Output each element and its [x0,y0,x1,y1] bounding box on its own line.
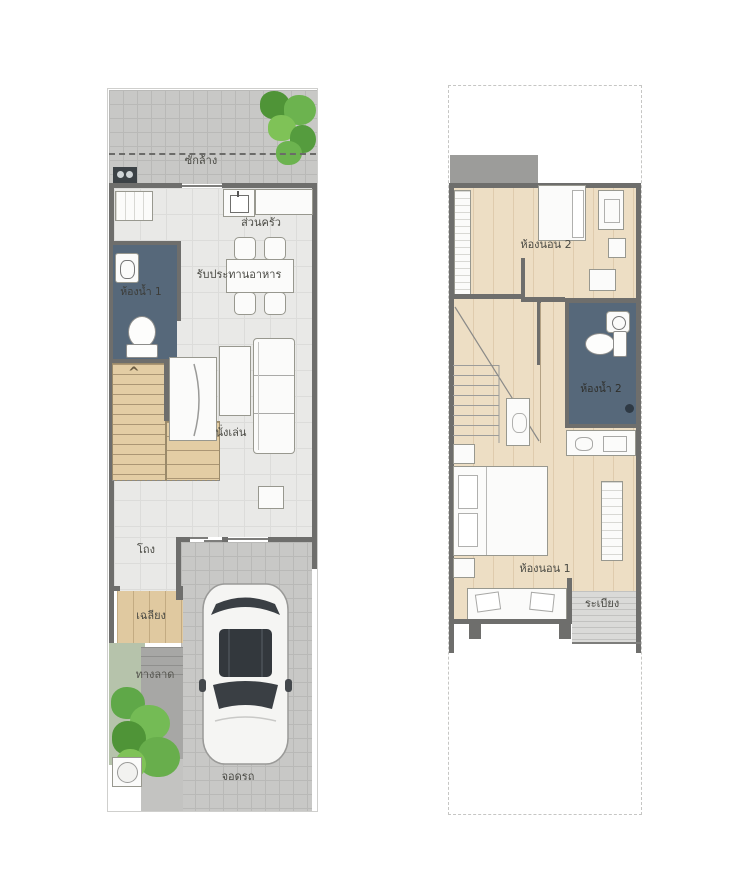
shower-head-icon [625,404,634,413]
wardrobe [454,190,471,298]
cabinet [589,269,616,291]
toilet-icon [585,331,629,357]
desk [598,190,624,230]
balcony-label: ระเบียง [567,598,637,610]
bench-sofa [467,588,567,620]
washing-machine-icon [113,167,137,183]
bedroom1-label: ห้องนอน 1 [505,563,585,575]
vanity-counter [566,430,636,456]
wall [454,294,524,299]
car-icon [199,581,292,767]
bathroom2-label: ห้องน้ำ 2 [560,384,642,396]
wall [176,586,183,600]
wall [312,183,317,563]
wall-post [469,624,481,639]
garage-sliding-door [190,537,208,539]
bedroom2-label: ห้องนอน 2 [506,239,586,251]
planter-box [112,757,142,787]
wall [177,245,181,321]
dining-chair [234,292,256,315]
garage-window [228,538,268,540]
dining-chair [264,292,286,315]
wall [449,619,571,624]
second-floor-plan: ห้องนอน 2 ห้องน้ำ 2 [448,85,642,815]
nightstand [453,558,475,578]
first-floor-plan: ซักล้าง ส่วนครัว รับประ [107,88,318,812]
dining-chair [264,237,286,260]
wall [565,424,641,428]
parking-label: จอดรถ [207,771,269,783]
wall [178,183,182,188]
sliding-door [178,185,226,187]
canopy-roof [450,155,538,184]
laundry-label: ซักล้าง [151,155,251,167]
toilet-icon [123,316,159,360]
bed-1 [453,466,548,556]
wall [109,183,178,188]
bathroom1-label: ห้องน้ำ 1 [110,287,172,299]
dining-chair [234,237,256,260]
kitchen-sink-icon [223,189,255,217]
wall-post [559,624,571,639]
floor-plan-page: ซักล้าง ส่วนครัว รับประ [0,0,750,887]
porch-label: เฉลียง [121,610,181,622]
cabinet [608,238,626,258]
hall-label: โถง [116,544,176,556]
bathroom2-sink-icon [606,311,630,333]
kitchen-label: ส่วนครัว [221,217,301,229]
wardrobe [601,481,623,561]
shoe-cabinet [115,191,153,221]
dining-label: รับประทานอาหาร [179,269,299,281]
wall [525,297,565,302]
living-label: นั่งเล่น [201,427,261,439]
stair-dashed-edge [112,480,220,481]
bed-2 [538,185,586,241]
wall [111,586,120,591]
stair-direction-arrow: ^ [128,365,140,381]
ramp-label: ทางลาด [124,669,186,681]
balcony-edge [572,642,641,644]
desk-under-stairs [506,398,530,446]
kitchen-counter [255,189,313,215]
bathroom1-sink-icon [115,253,139,283]
wall [636,183,641,653]
side-table [258,486,284,509]
nightstand [453,444,475,464]
wall [226,183,317,188]
wall [111,241,181,245]
coffee-table [219,346,251,416]
